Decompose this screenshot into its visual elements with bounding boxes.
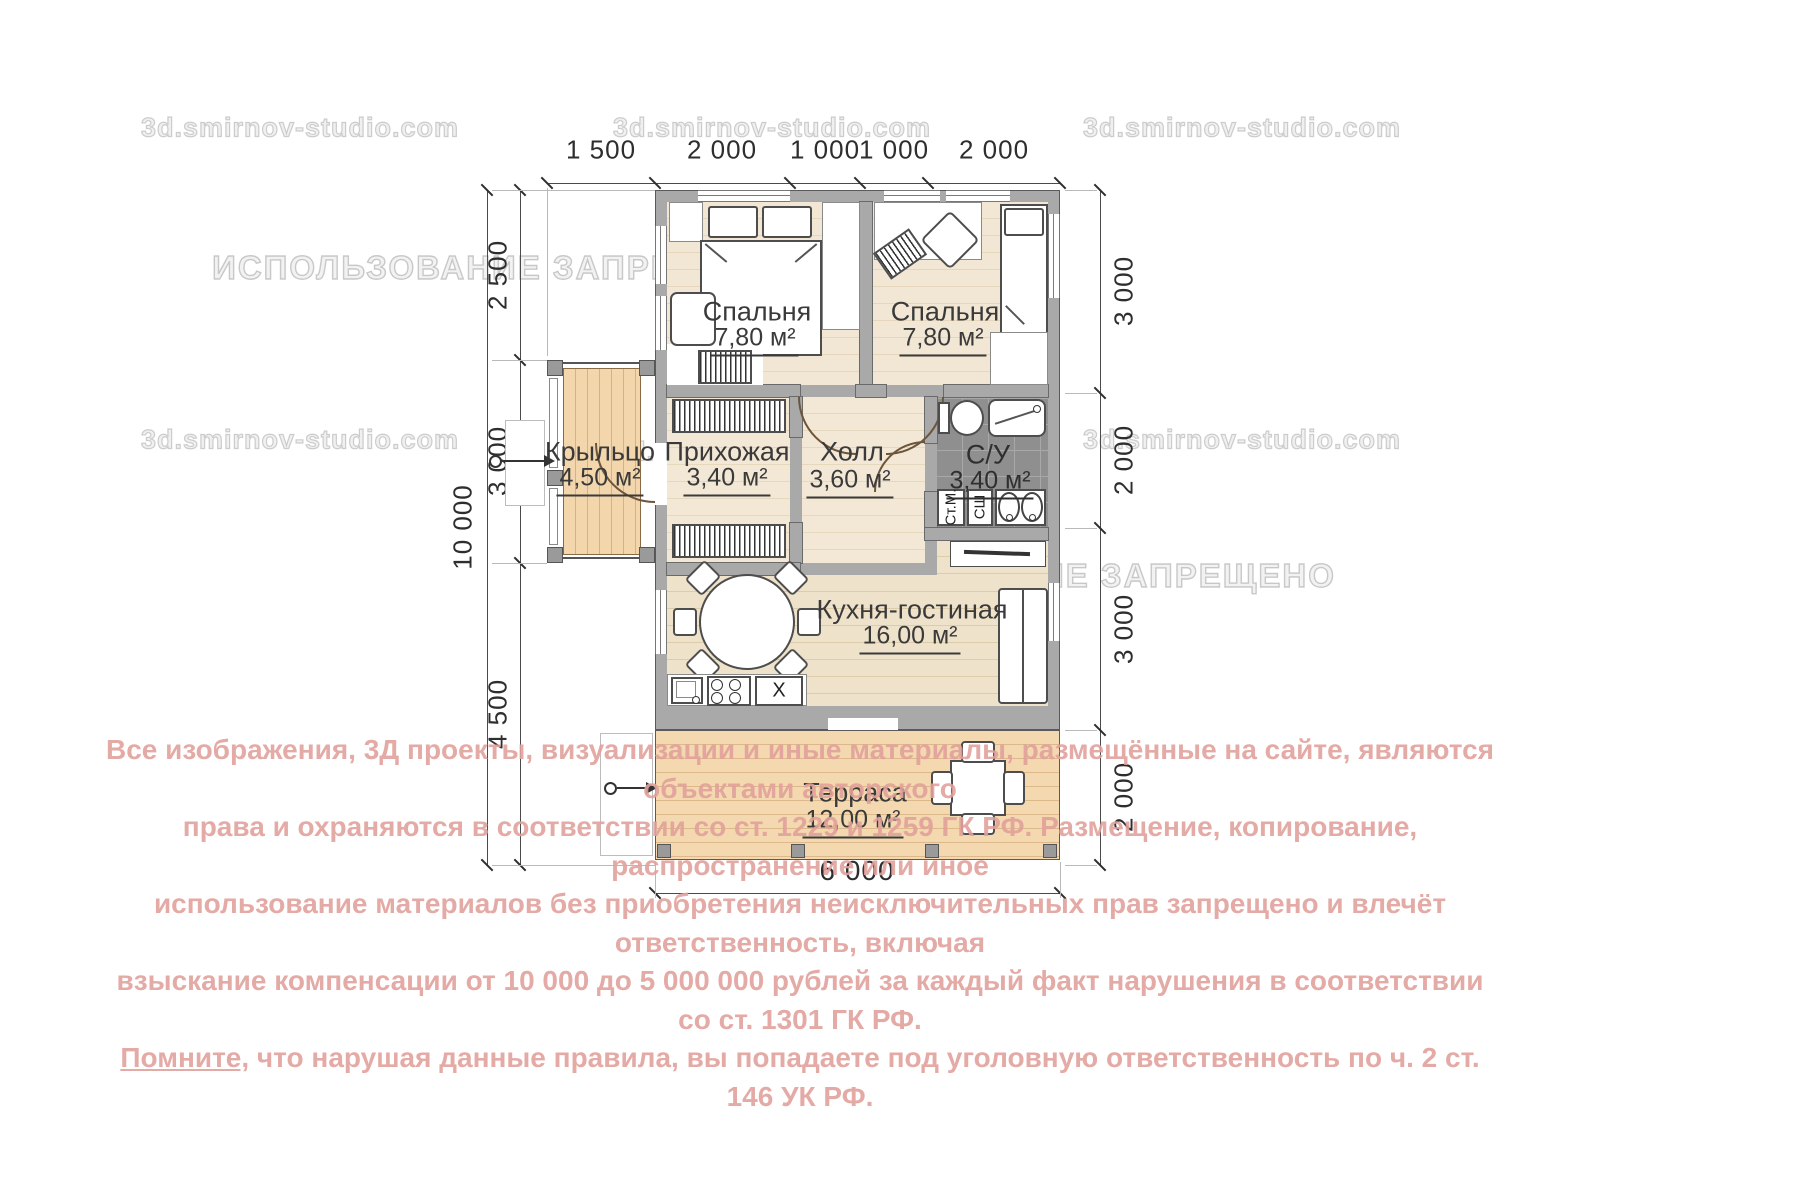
window xyxy=(884,190,940,202)
dim-right-3: 3 000 xyxy=(1109,594,1140,664)
window xyxy=(655,590,667,654)
porch-rail xyxy=(563,362,639,364)
entry-arrow-icon xyxy=(489,455,502,468)
wardrobe xyxy=(672,399,786,433)
watermark-site: 3d.smirnov-studio.com xyxy=(141,113,459,144)
extension-line xyxy=(1065,528,1097,529)
bedroom-bottom-wall xyxy=(856,385,886,397)
copyright-line: использование материалов без приобретени… xyxy=(100,885,1500,962)
bathroom-bottom-wall xyxy=(925,528,1048,540)
dim-right-1: 3 000 xyxy=(1109,256,1140,326)
dining-chair xyxy=(673,608,697,636)
window xyxy=(1048,583,1060,641)
bathtub-drain xyxy=(1033,405,1041,413)
bedroom2-closet xyxy=(990,332,1048,385)
window xyxy=(655,296,667,350)
window xyxy=(698,190,790,202)
dim-top-1: 1 500 xyxy=(566,135,636,166)
bedroom-bottom-wall xyxy=(944,385,1048,397)
wardrobe xyxy=(672,524,786,558)
room-area-entry: 3,40 м² xyxy=(683,464,770,497)
window xyxy=(1048,214,1060,298)
watermark-site: 3d.smirnov-studio.com xyxy=(1083,113,1401,144)
room-area-bedroom1: 7,80 м² xyxy=(711,324,798,357)
extension-line xyxy=(492,360,547,361)
stove-burner xyxy=(711,692,723,704)
porch-post xyxy=(547,360,563,376)
dim-left-total: 10 000 xyxy=(448,484,479,570)
window xyxy=(946,190,1010,202)
copyright-line-rest: что нарушая данные правила, вы попадаете… xyxy=(249,1042,1479,1112)
room-label-hall: Холл xyxy=(820,437,884,468)
dining-table xyxy=(699,574,795,670)
kitchen-tap xyxy=(692,696,700,704)
extension-line xyxy=(492,190,655,191)
copyright-emphasis: Помните, xyxy=(120,1042,249,1073)
entry-hall-wall-stub xyxy=(790,523,802,563)
extension-line xyxy=(1065,393,1097,394)
copyright-notice: Все изображения, 3Д проекты, визуализаци… xyxy=(100,731,1500,1116)
dim-top-4: 1 000 xyxy=(859,135,929,166)
porch-post xyxy=(639,547,655,563)
sofa-cushion-line xyxy=(1022,590,1024,702)
room-area-bathroom: 3,40 м² xyxy=(946,467,1033,500)
porch-rail xyxy=(563,557,639,559)
floor-plan-canvas: 3d.smirnov-studio.com 3d.smirnov-studio.… xyxy=(0,0,1800,1200)
kitchen-sink-basin xyxy=(676,681,696,698)
porch-post xyxy=(639,360,655,376)
stove-burner xyxy=(729,679,741,691)
room-area-bedroom2: 7,80 м² xyxy=(899,324,986,357)
kitchen-cabinet-label: X xyxy=(772,680,785,703)
pillow xyxy=(762,206,812,238)
terrace-door-opening xyxy=(828,718,898,730)
dim-line-top xyxy=(547,183,1060,184)
window xyxy=(655,226,667,284)
stove-burner xyxy=(729,692,741,704)
stove-burner xyxy=(711,679,723,691)
bedroom1-closet xyxy=(822,202,860,330)
dim-top-3: 1 000 xyxy=(790,135,860,166)
dim-top-5: 2 000 xyxy=(959,135,1029,166)
copyright-line: права и охраняются в соответствии со ст.… xyxy=(100,808,1500,885)
copyright-line: Все изображения, 3Д проекты, визуализаци… xyxy=(100,731,1500,808)
dim-top-2: 2 000 xyxy=(687,135,757,166)
extension-line xyxy=(492,563,547,564)
sink-tap xyxy=(1029,514,1036,521)
toilet-bowl xyxy=(950,400,984,436)
entry-arrow-shaft xyxy=(502,460,544,462)
sink-tap xyxy=(1006,514,1013,521)
extension-line xyxy=(547,188,548,356)
pillow xyxy=(1004,208,1044,236)
watermark-site: 3d.smirnov-studio.com xyxy=(141,425,459,456)
room-area-hall: 3,60 м² xyxy=(806,466,893,499)
pillow xyxy=(708,206,758,238)
extension-line xyxy=(1065,190,1097,191)
room-area-kitchen: 16,00 м² xyxy=(859,622,960,655)
bedroom-partition-wall xyxy=(860,202,872,385)
bathroom-wall xyxy=(925,492,937,528)
bedroom-bottom-wall xyxy=(667,385,800,397)
copyright-line: взыскание компенсации от 10 000 до 5 000… xyxy=(100,962,1500,1039)
toilet-tank xyxy=(938,402,950,434)
room-area-porch: 4,50 м² xyxy=(556,464,643,497)
dim-right-2: 2 000 xyxy=(1109,425,1140,495)
bedroom1-nook xyxy=(669,202,703,242)
porch-window xyxy=(549,488,558,545)
copyright-line: Помните, что нарушая данные правила, вы … xyxy=(100,1039,1500,1116)
dim-left-1: 2 500 xyxy=(483,240,514,310)
porch-post xyxy=(547,547,563,563)
porch-steps xyxy=(505,420,545,506)
